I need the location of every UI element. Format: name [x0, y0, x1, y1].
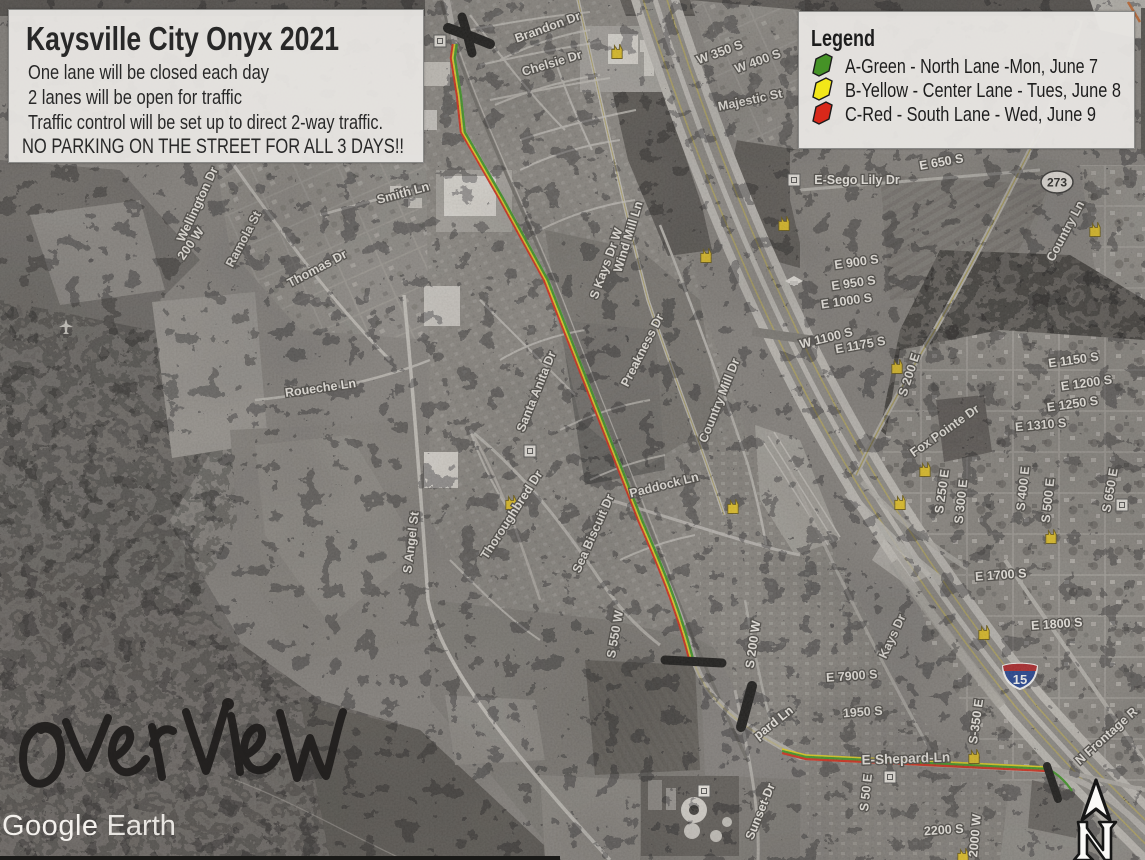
- svg-text:C-Red - South Lane - Wed, June: C-Red - South Lane - Wed, June 9: [845, 104, 1096, 126]
- svg-text:One lane will be closed each d: One lane will be closed each day: [28, 62, 269, 84]
- svg-text:Kaysville City Onyx 2021: Kaysville City Onyx 2021: [26, 20, 339, 57]
- svg-text:Traffic control will be set up: Traffic control will be set up to direct…: [28, 112, 383, 134]
- svg-text:2 lanes will be open for traff: 2 lanes will be open for traffic: [28, 87, 242, 109]
- svg-text:B-Yellow - Center Lane - Tues,: B-Yellow - Center Lane - Tues, June 8: [845, 80, 1121, 102]
- svg-text:Legend: Legend: [811, 25, 875, 51]
- svg-text:NO PARKING ON THE STREET FOR A: NO PARKING ON THE STREET FOR ALL 3 DAYS!…: [22, 135, 404, 158]
- svg-text:A-Green - North Lane -Mon, Jun: A-Green - North Lane -Mon, June 7: [845, 56, 1098, 78]
